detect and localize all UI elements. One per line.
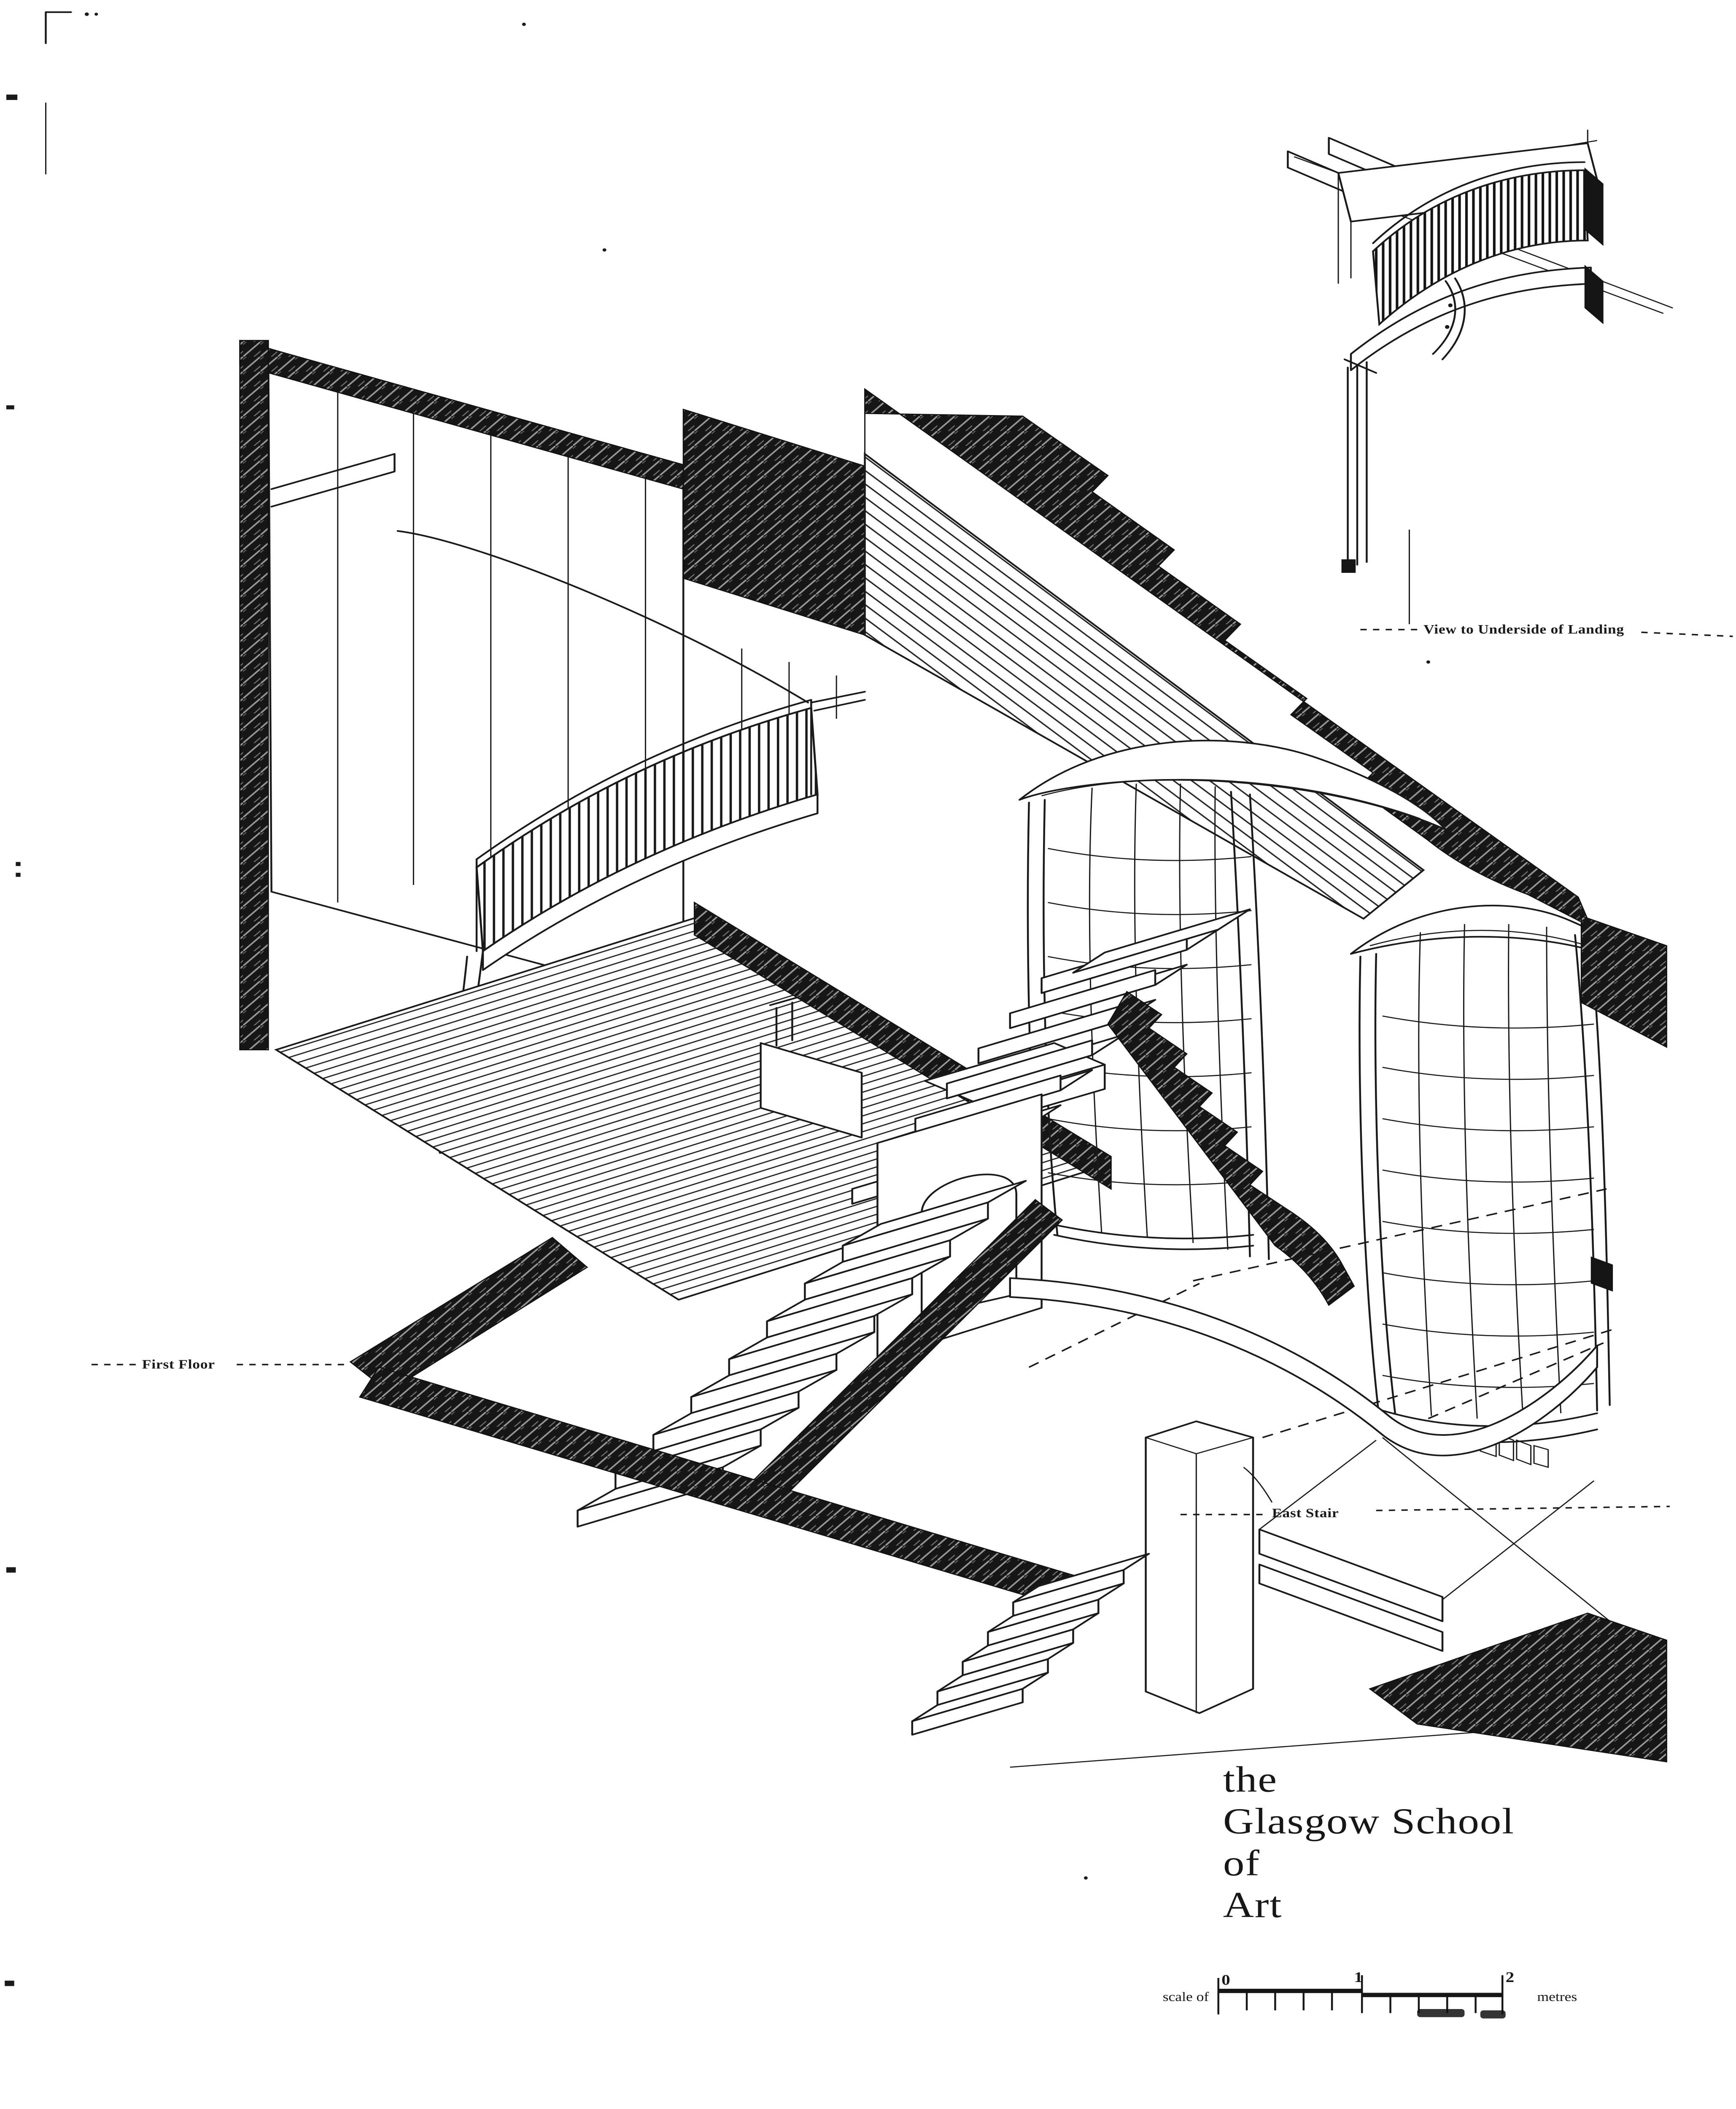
- scale-unit-label: metres: [1537, 1990, 1577, 2004]
- newel-post: [1146, 1421, 1253, 1713]
- inset-caption-label: View to Underside of Landing: [1423, 623, 1624, 636]
- title-line-2: Glasgow School: [1223, 1801, 1515, 1842]
- scale-prefix-label: scale of: [1163, 1990, 1210, 2004]
- east-stair-label: East Stair: [1272, 1506, 1339, 1520]
- axonometric-drawing: First Floor East Stair View to Unders: [0, 0, 1736, 2109]
- left-section-strip: [240, 340, 268, 1050]
- scale-number-0: 0: [1221, 1972, 1230, 1988]
- scale-bar-segment-1: [1218, 1989, 1362, 1993]
- scale-bar-segment-2: [1362, 1993, 1502, 1997]
- illegible-fine-print-mark: [1417, 2009, 1464, 2017]
- title-line-3: of: [1223, 1843, 1260, 1884]
- scale-number-2: 2: [1506, 1969, 1515, 1986]
- title-line-1: the: [1223, 1759, 1278, 1800]
- scanned-drawing-page: First Floor East Stair View to Unders: [0, 0, 1736, 2109]
- illegible-fine-print-mark: [1480, 2010, 1506, 2018]
- title-line-4: Art: [1223, 1885, 1282, 1926]
- first-floor-label: First Floor: [142, 1358, 215, 1372]
- scale-number-1: 1: [1354, 1969, 1363, 1986]
